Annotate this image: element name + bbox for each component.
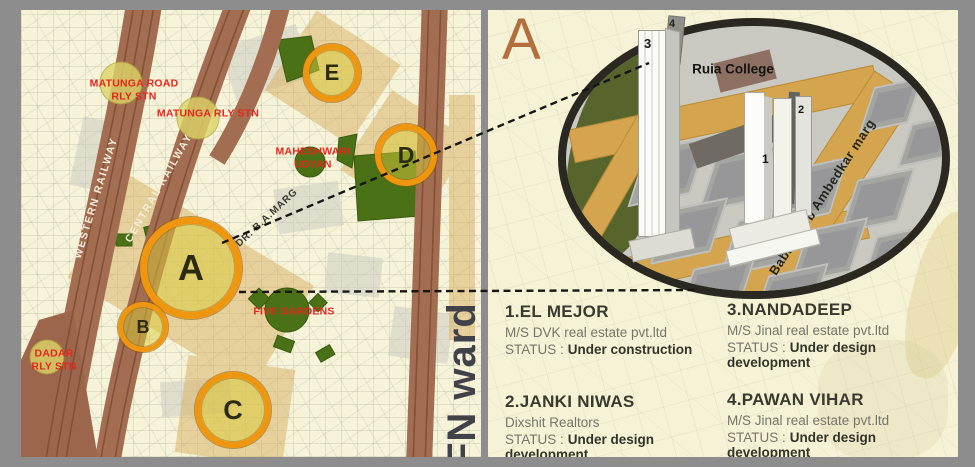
project-title: 4.PAWAN VIHAR	[727, 390, 955, 410]
project-developer: M/S DVK real estate pvt.ltd	[505, 325, 733, 340]
site-marker-d: D	[375, 124, 437, 186]
site-marker-b-letter: B	[137, 317, 150, 338]
project-pawan-vihar: 4.PAWAN VIHAR M/S Jinal real estate pvt.…	[727, 390, 955, 457]
tower-3-number: 3	[644, 36, 651, 51]
project-developer: M/S Jinal real estate pvt.ltd	[727, 323, 955, 338]
five-gardens-label: FIVE GARDENS	[253, 306, 334, 319]
project-nandadeep: 3.NANDADEEP M/S Jinal real estate pvt.lt…	[727, 300, 955, 370]
status-label: STATUS :	[727, 340, 786, 355]
poster-stage: WESTERN RAILWAY CENTRAL RAILWAY MATUNGA …	[0, 0, 975, 467]
dadar-station-label: DADAR RLY STN	[31, 347, 76, 372]
project-status: STATUS :Under construction	[505, 342, 733, 357]
tower-2-number: 2	[798, 104, 804, 116]
site-marker-c: C	[195, 372, 271, 448]
site-marker-e: E	[303, 44, 361, 102]
tower-side-face	[665, 28, 680, 238]
tower-4-number: 4	[669, 18, 675, 30]
status-label: STATUS :	[505, 342, 564, 357]
ruia-college-label: Ruia College	[692, 62, 774, 77]
project-developer: Dixshit Realtors	[505, 415, 733, 430]
project-title: 2.JANKI NIWAS	[505, 392, 733, 412]
site-marker-d-letter: D	[398, 142, 415, 169]
status-value: Under construction	[568, 342, 693, 357]
maheshwari-udyan-label: MAHESHWARI UDYAN	[276, 145, 351, 170]
section-letter: A	[502, 10, 541, 73]
tower-nandadeep: 4 3	[638, 20, 688, 260]
project-janki-niwas: 2.JANKI NIWAS Dixshit Realtors STATUS :U…	[505, 392, 733, 457]
project-status: STATUS :Under design development	[505, 432, 733, 457]
site-marker-e-letter: E	[325, 60, 340, 86]
project-title: 3.NANDADEEP	[727, 300, 955, 320]
site-marker-b: B	[118, 302, 168, 352]
matunga-road-station-label: MATUNGA ROAD RLY STN	[90, 77, 179, 102]
matunga-station-label: MATUNGA RLY STN	[157, 108, 259, 121]
project-el-mejor: 1.EL MEJOR M/S DVK real estate pvt.ltd S…	[505, 302, 733, 357]
status-label: STATUS :	[727, 430, 786, 445]
ward-map-panel: WESTERN RAILWAY CENTRAL RAILWAY MATUNGA …	[21, 10, 481, 457]
project-developer: M/S Jinal real estate pvt.ltd	[727, 413, 955, 428]
project-title: 1.EL MEJOR	[505, 302, 733, 322]
detail-panel: A Ruia College Babasaheb Ambedkar mar	[488, 10, 958, 457]
tower-front-face	[773, 98, 792, 230]
tower-front-face	[638, 30, 666, 237]
status-label: STATUS :	[505, 432, 564, 447]
towers-elmejor-janki: 1 2	[742, 86, 832, 256]
site-marker-c-letter: C	[223, 395, 243, 426]
tower-1-number: 1	[762, 152, 769, 166]
project-status: STATUS :Under design development	[727, 340, 955, 370]
site-marker-a-letter: A	[178, 247, 204, 289]
project-status: STATUS :Under design development	[727, 430, 955, 457]
site-marker-a: A	[140, 217, 242, 319]
fn-ward-label: FN ward	[438, 289, 481, 457]
